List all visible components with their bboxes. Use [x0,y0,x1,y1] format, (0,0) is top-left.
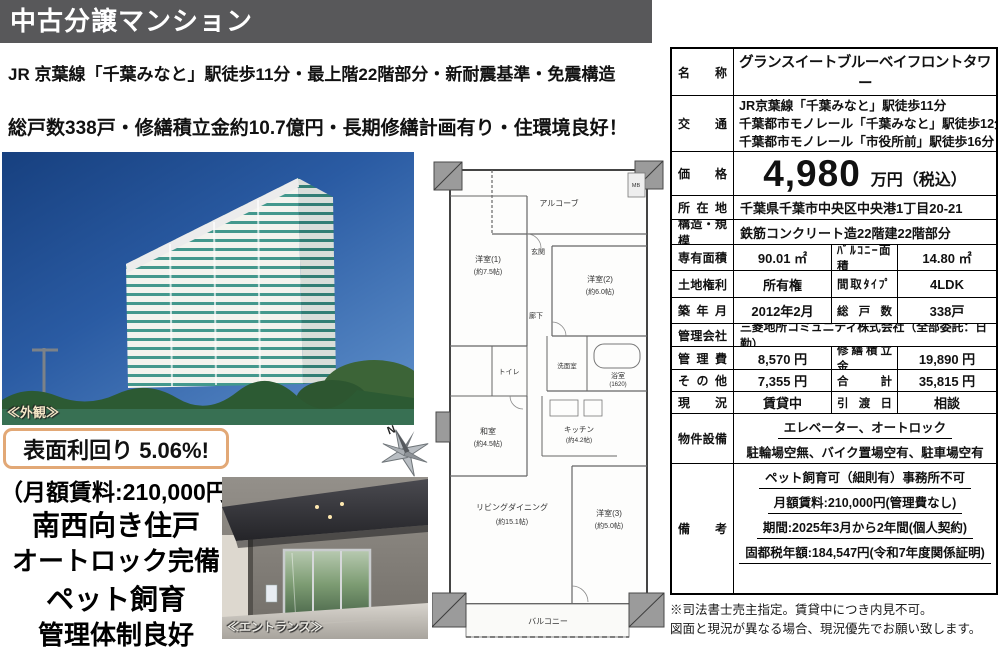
fp-living: リビングダイニング [476,502,548,512]
row-built: 築年月 2012年2月 総戸数 338戸 [672,297,996,323]
remarks-line-3: 期間:2025年3月から2年間(個人契約) [757,514,973,539]
access-lines: JR京葉線「千葉みなと」駅徒歩11分 千葉都市モノレール「千葉みなと」駅徒歩12… [734,97,996,151]
entrance-photo: ≪エントランス≫ [222,477,428,639]
exterior-photo: ≪外観≫ [2,152,414,425]
row-status: 現況 賃貸中 引渡日 相談 [672,391,996,413]
access-line-2: 千葉都市モノレール「千葉みなと」駅徒歩12分 [739,115,996,133]
fp-room2-size: (約6.0帖) [586,287,614,296]
entrance-caption: ≪エントランス≫ [227,618,323,635]
page-title: 中古分譲マンション [0,0,652,43]
fp-kitchen-size: (約4.2帖) [566,435,592,444]
row-management-fee: 管理費 8,570 円 修繕積立金 19,890 円 [672,346,996,369]
total-units-value: 338戸 [897,298,996,323]
compass-north-label: N [386,423,398,437]
remarks-line-1: ペット飼育可（細則有）事務所不可 [759,464,971,489]
status-label: 現況 [678,394,727,411]
row-name: 名称 グランスイートブルーベイフロントタワー [672,49,996,95]
equipment-line-2: 駐輪場空無、バイク置場空有、駐車場空有 [740,439,989,463]
floorplan: アルコーブ MB 洋室(1) (約7.5帖) 玄関 洋室(2) (約6.0帖) … [432,156,665,648]
fp-wash: 洗面室 [557,361,577,370]
fp-room2: 洋室(2) [587,274,613,284]
fp-hall: 廊下 [529,311,543,320]
handover-label: 引渡日 [837,395,892,411]
promo-feature-management: 管理体制良好 [0,615,232,650]
exterior-photo-art [2,152,414,425]
headline-sub: 総戸数338戸・修繕積立金約10.7億円・長期修繕計画有り・住環境良好！ [8,113,668,140]
address-value: 千葉県千葉市中央区中央港1丁目20-21 [733,196,996,219]
repair-fund-label: 修繕積立金 [837,347,892,369]
exterior-caption: ≪外観≫ [7,402,59,421]
land-value: 所有権 [733,271,831,297]
entrance-photo-art [222,477,428,639]
status-value: 賃貸中 [733,392,831,413]
promo-feature-direction: 南西向き住戸 [0,504,232,544]
promo-rent-note: （月額賃料:210,000円） [0,473,232,507]
layout-type-value: 4LDK [897,271,996,297]
price-unit: 万円（税込） [871,158,967,190]
access-line-3: 千葉都市モノレール「市役所前」駅徒歩16分 [739,133,996,151]
fp-washitsu: 和室 [480,426,496,436]
row-area: 専有面積 90.01 ㎡ ﾊﾞﾙｺﾆｰ面積 14.80 ㎡ [672,244,996,270]
repair-fund-value: 19,890 円 [897,347,996,369]
fp-genkan: 玄関 [531,247,545,256]
remarks-line-2: 月額賃料:210,000円(管理費なし) [768,489,963,514]
remarks-line-4: 固都税年額:184,547円(令和7年度関係証明) [739,539,991,564]
fp-living-size: (約15.1帖) [496,517,528,526]
area-value: 90.01 ㎡ [733,245,831,270]
fp-toilet: トイレ [499,369,520,376]
total-fee-label: 合計 [837,373,892,389]
footnote-line-1: ※司法書士売主指定。賃貸中につき内見不可。 [670,601,1000,620]
balcony-area-value: 14.80 ㎡ [897,245,996,270]
mgmt-fee-label: 管理費 [678,350,727,367]
fp-room1-size: (約7.5帖) [474,267,502,276]
other-fee-label: その他 [678,372,727,389]
fp-room3: 洋室(3) [596,508,622,518]
row-management-company: 管理会社 三菱地所コミュニティ株式会社（全部委託：日勤） [672,323,996,346]
row-remarks: 備考 ペット飼育可（細則有）事務所不可 月額賃料:210,000円(管理費なし)… [672,463,996,593]
structure-label: 構造・規模 [678,220,727,244]
promo-feature-autolock: オートロック完備 [0,541,232,578]
row-equipment: 物件設備 エレベーター、オートロック 駐輪場空無、バイク置場空有、駐車場空有 [672,413,996,463]
fp-bath: 浴室 [611,371,625,380]
fp-room3-size: (約5.0帖) [595,521,623,530]
total-fee-value: 35,815 円 [897,370,996,391]
headline-main: JR 京葉線「千葉みなと」駅徒歩11分・最上階22階部分・新耐震基準・免震構造 [8,60,668,85]
price: 4,980 万円（税込） [734,153,996,195]
equipment-label: 物件設備 [678,430,727,447]
fp-washitsu-size: (約4.5帖) [474,439,502,448]
equipment-line-1: エレベーター、オートロック [778,414,952,439]
access-line-1: JR京葉線「千葉みなと」駅徒歩11分 [739,97,996,115]
layout-type-label: 間取ﾀｲﾌﾟ [837,276,892,292]
built-label: 築年月 [678,302,727,319]
promo-feature-pets: ペット飼育 [0,578,232,618]
area-label: 専有面積 [678,249,727,266]
built-value: 2012年2月 [733,298,831,323]
structure-value: 鉄筋コンクリート造22階建22階部分 [733,220,996,244]
land-label: 土地権利 [678,276,727,293]
row-access: 交通 JR京葉線「千葉みなと」駅徒歩11分 千葉都市モノレール「千葉みなと」駅徒… [672,95,996,151]
footnote: ※司法書士売主指定。賃貸中につき内見不可。 図面と現況が異なる場合、現況優先でお… [670,601,1000,639]
fp-bath-size: (1620) [609,382,626,388]
fp-alcove: アルコーブ [539,198,578,208]
compass-north-icon: N [378,422,432,480]
row-price: 価格 4,980 万円（税込） [672,151,996,195]
mgmt-co-label: 管理会社 [678,327,727,344]
row-land: 土地権利 所有権 間取ﾀｲﾌﾟ 4LDK [672,270,996,297]
remarks-label: 備考 [678,520,727,537]
mgmt-co-value: 三菱地所コミュニティ株式会社（全部委託：日勤） [733,324,996,346]
handover-value: 相談 [897,392,996,413]
total-units-label: 総戸数 [837,303,892,319]
name-label: 名称 [678,64,727,81]
other-fee-value: 7,355 円 [733,370,831,391]
row-structure: 構造・規模 鉄筋コンクリート造22階建22階部分 [672,219,996,244]
fp-kitchen: キッチン [564,425,594,434]
fp-room1: 洋室(1) [475,254,501,264]
flyer-page: 中古分譲マンション JR 京葉線「千葉みなと」駅徒歩11分・最上階22階部分・新… [0,0,1000,650]
fp-mb: MB [632,183,641,189]
address-label: 所在地 [678,199,727,216]
row-address: 所在地 千葉県千葉市中央区中央港1丁目20-21 [672,195,996,219]
name-value: グランスイートブルーベイフロントタワー [733,49,996,95]
price-value: 4,980 [763,153,861,195]
price-label: 価格 [678,165,727,182]
balcony-area-label: ﾊﾞﾙｺﾆｰ面積 [837,245,892,270]
remarks-empty [859,564,871,593]
footnote-line-2: 図面と現況が異なる場合、現況優先でお願い致します。 [670,620,1000,639]
access-label: 交通 [678,115,727,132]
row-other-fee: その他 7,355 円 合計 35,815 円 [672,369,996,391]
fp-balcony: バルコニー [528,617,568,626]
spec-table: 名称 グランスイートブルーベイフロントタワー 交通 JR京葉線「千葉みなと」駅徒… [670,47,998,595]
mgmt-fee-value: 8,570 円 [733,347,831,369]
yield-badge: 表面利回り 5.06%! [3,428,229,469]
